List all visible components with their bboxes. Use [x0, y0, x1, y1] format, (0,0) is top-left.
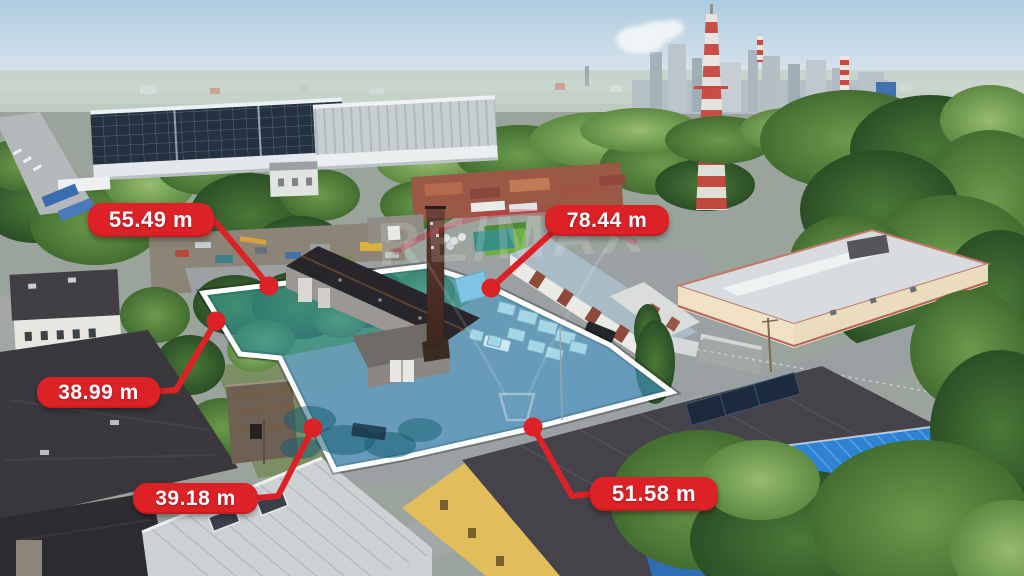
vertex-dot [207, 312, 226, 331]
office-building [269, 161, 318, 197]
warehouse-white [313, 95, 498, 169]
measurement-label-bottom: 51.58 m [590, 477, 718, 511]
measurement-label-right: 78.44 m [545, 205, 669, 236]
vertex-dot [260, 277, 279, 296]
aerial-property-photo: RE/MAX 55.49 m 78.44 m 38.99 m 39.18 m 5… [0, 0, 1024, 576]
vertex-dot [304, 419, 323, 438]
measurement-label-top: 55.49 m [88, 203, 214, 237]
vertex-dot [524, 418, 543, 437]
measurement-label-upper-left: 38.99 m [37, 377, 160, 408]
balloon-basket [500, 394, 534, 420]
measurement-label-lower-left: 39.18 m [133, 483, 258, 514]
vertex-dot [482, 279, 501, 298]
